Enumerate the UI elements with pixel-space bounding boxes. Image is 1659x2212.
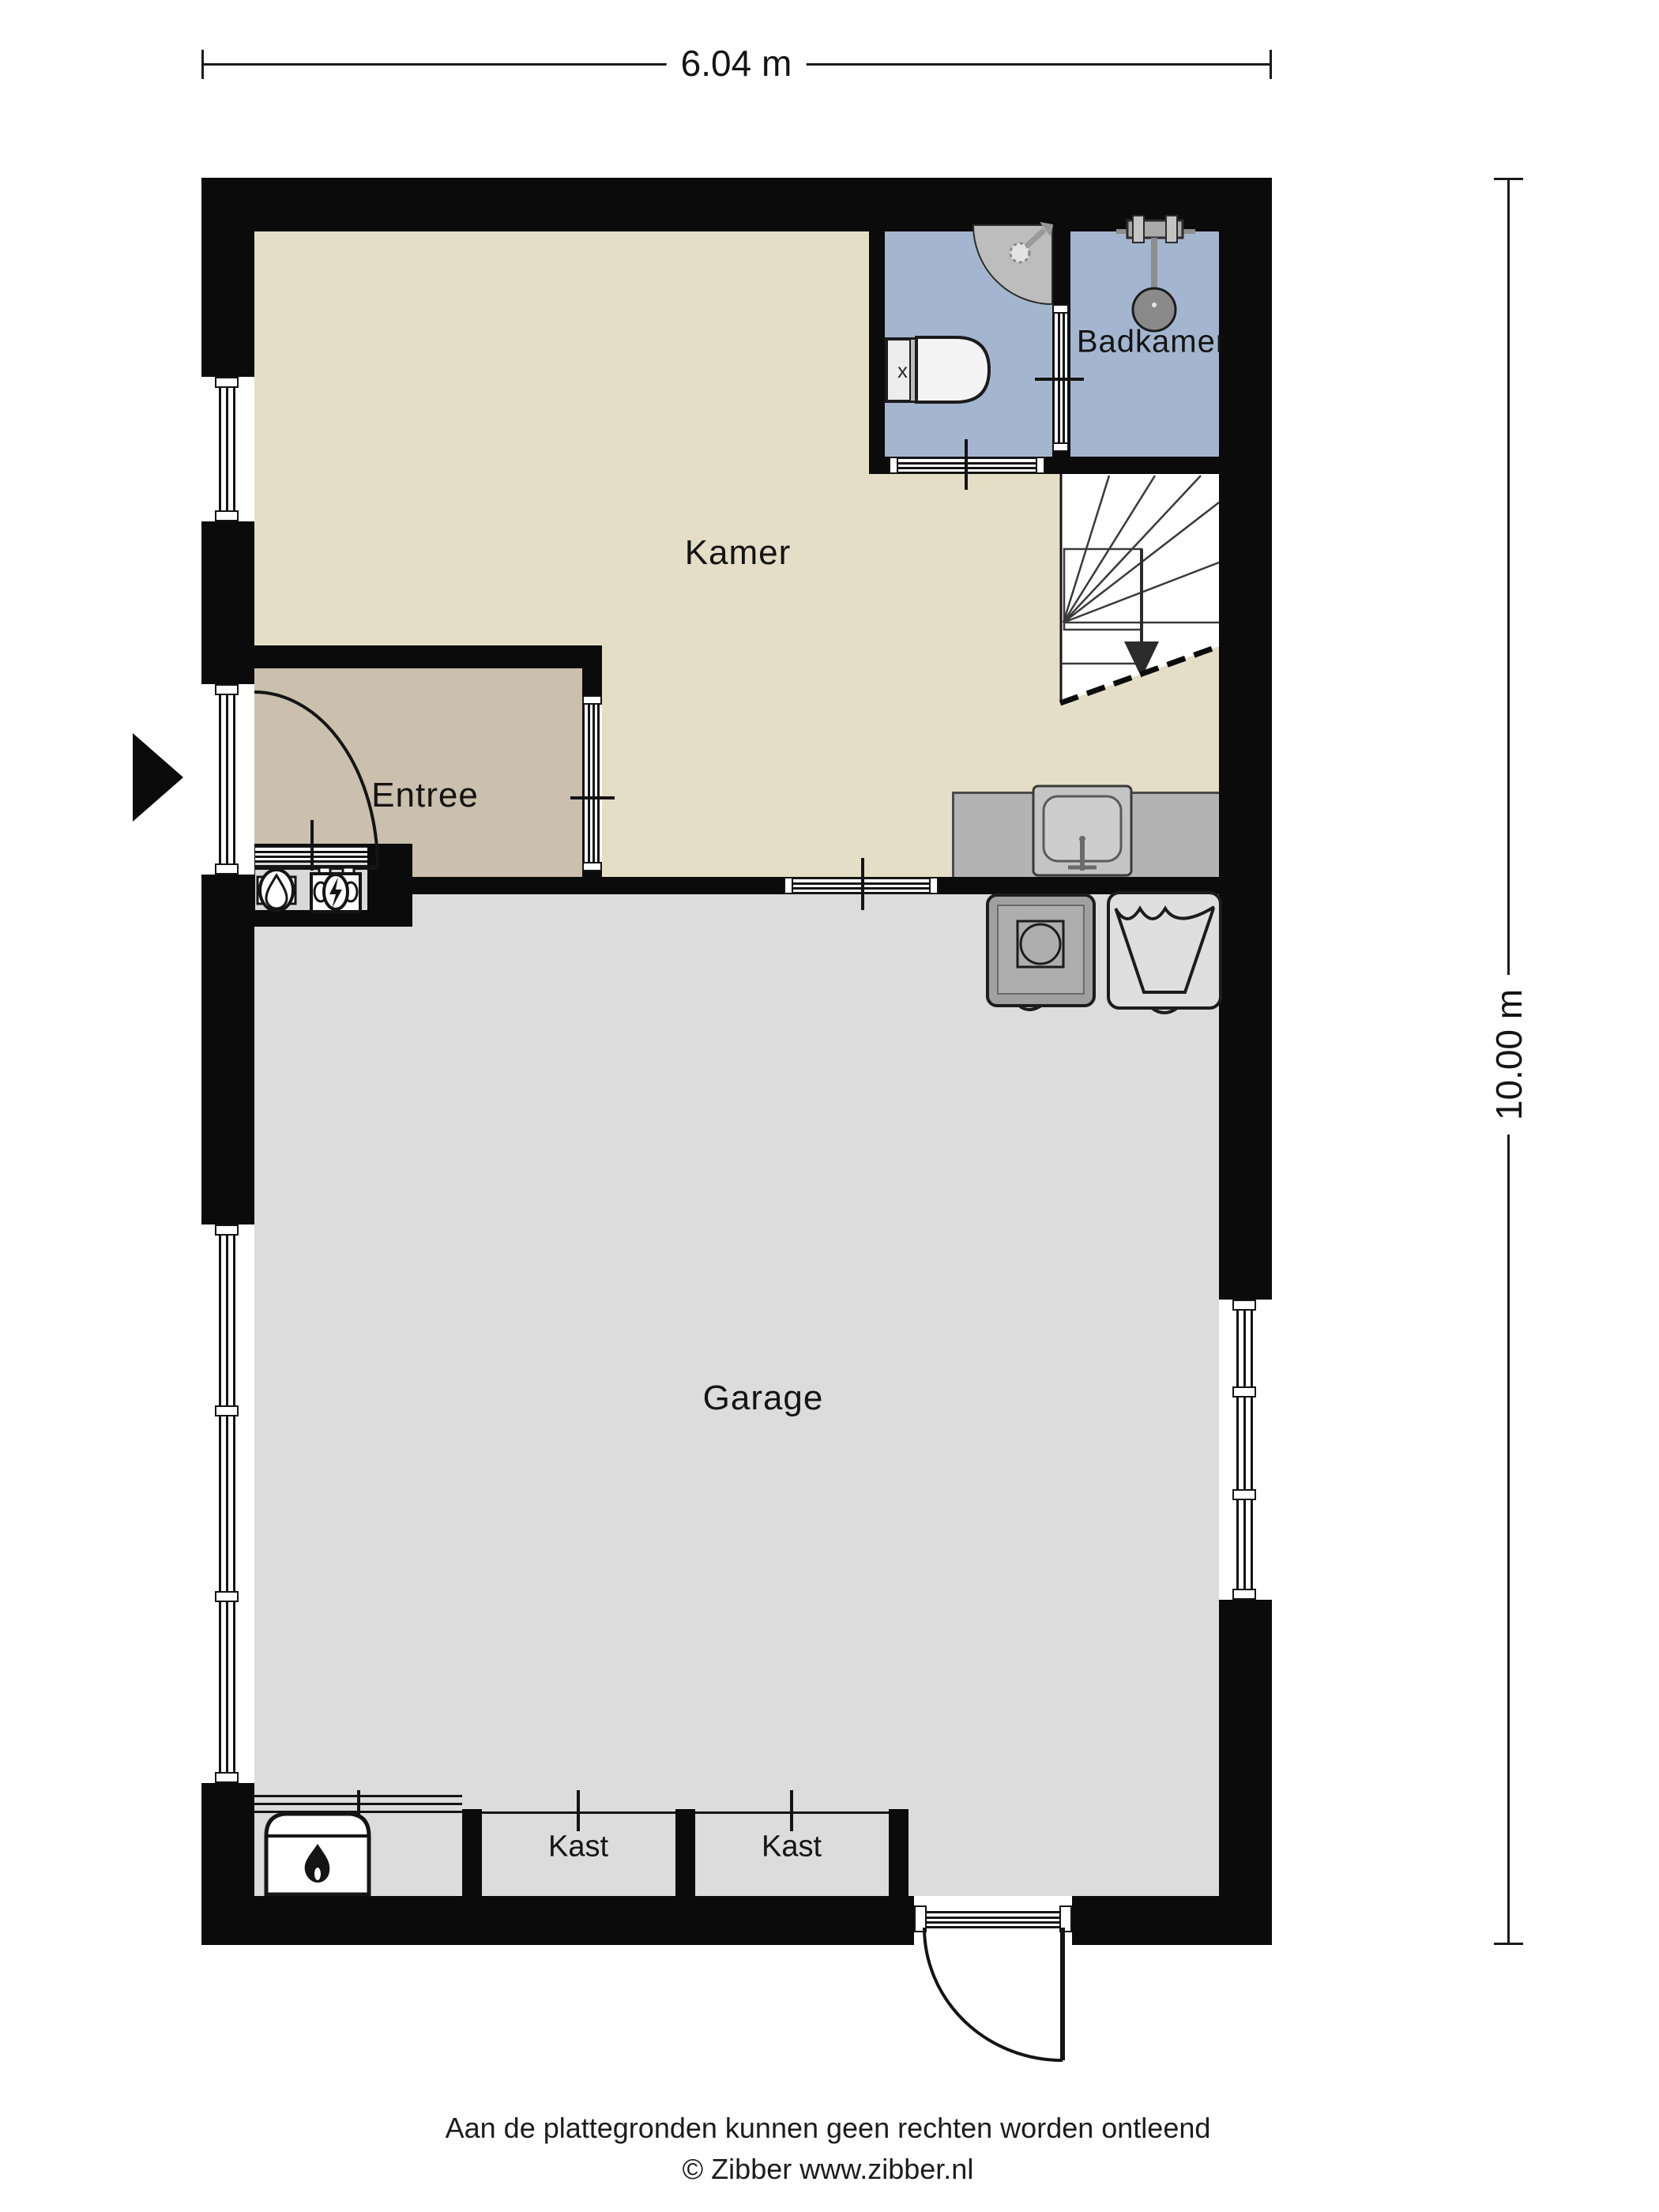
window-cap xyxy=(215,510,239,521)
toilet-room-door-tick xyxy=(965,439,968,490)
window-cap xyxy=(784,877,793,894)
kast2-door-tick xyxy=(790,1790,793,1831)
window-divider xyxy=(1232,1386,1256,1398)
kast1-label: Kast xyxy=(548,1830,608,1864)
garage-left-window xyxy=(201,1224,254,1783)
dimension-tick-right xyxy=(1270,50,1272,79)
badkamer-label: Badkamer xyxy=(1077,325,1227,360)
door-cap xyxy=(1059,1905,1072,1932)
window-cap xyxy=(215,1224,239,1236)
toilet-badkamer-door-tick xyxy=(1035,378,1084,381)
window-cap xyxy=(215,377,239,388)
width-dimension-label: 6.04 m xyxy=(667,42,807,85)
dimension-tick-top xyxy=(1494,178,1523,180)
door-cap xyxy=(1036,457,1045,474)
garage-door-threshold xyxy=(925,1911,1061,1928)
stairs-area xyxy=(1060,474,1219,703)
window-divider xyxy=(1232,1489,1256,1500)
kamer-label: Kamer xyxy=(685,533,792,573)
window-cap xyxy=(582,695,602,705)
window-cap xyxy=(929,877,939,894)
kitchen-counter xyxy=(952,792,1219,877)
garage-label: Garage xyxy=(703,1379,824,1418)
garage-door-swing-icon xyxy=(924,1928,1063,2060)
door-cap xyxy=(1052,442,1069,452)
window-cap xyxy=(1232,1300,1256,1311)
kast1-door-tick xyxy=(577,1790,580,1831)
kamer-left-window xyxy=(201,377,254,521)
window-cap xyxy=(215,1772,239,1783)
front-door-opening xyxy=(201,684,254,875)
disclaimer-text: Aan de plattegronden kunnen geen rechten… xyxy=(446,2112,1211,2145)
window-divider xyxy=(215,1591,239,1602)
entree-kamer-window xyxy=(582,695,602,871)
window-divider xyxy=(215,1405,239,1416)
compartment-divider-1 xyxy=(462,1809,482,1896)
window-cap xyxy=(1232,1589,1256,1600)
entree-label: Entree xyxy=(371,776,479,815)
entree-top-wall xyxy=(254,645,602,668)
door-cap xyxy=(889,457,898,474)
floorplan-canvas: 6.04 m 10.00 m xyxy=(0,0,1659,2212)
kast2-label: Kast xyxy=(762,1830,822,1864)
dimension-tick-left xyxy=(201,50,204,79)
door-cap xyxy=(1052,304,1069,314)
compartment-divider-2 xyxy=(675,1809,695,1896)
door-cap xyxy=(215,684,239,695)
meter-cupboard-tick xyxy=(310,820,314,871)
door-cap xyxy=(215,863,239,875)
entrance-arrow-icon xyxy=(133,733,183,822)
compartment-divider-3 xyxy=(889,1809,908,1896)
toilet-room-floor xyxy=(885,231,1052,457)
boiler-room-door-tick xyxy=(357,1790,360,1831)
door-cap xyxy=(914,1905,927,1932)
dimension-tick-bottom xyxy=(1494,1943,1523,1945)
garage-right-window xyxy=(1219,1300,1272,1600)
copyright-text: © Zibber www.zibber.nl xyxy=(683,2153,974,2186)
bathroom-left-wall xyxy=(869,231,885,474)
kamer-garage-window-tick xyxy=(861,858,864,910)
window-cap xyxy=(582,862,602,871)
entree-window-tick xyxy=(570,796,615,799)
height-dimension-label: 10.00 m xyxy=(1488,975,1530,1134)
